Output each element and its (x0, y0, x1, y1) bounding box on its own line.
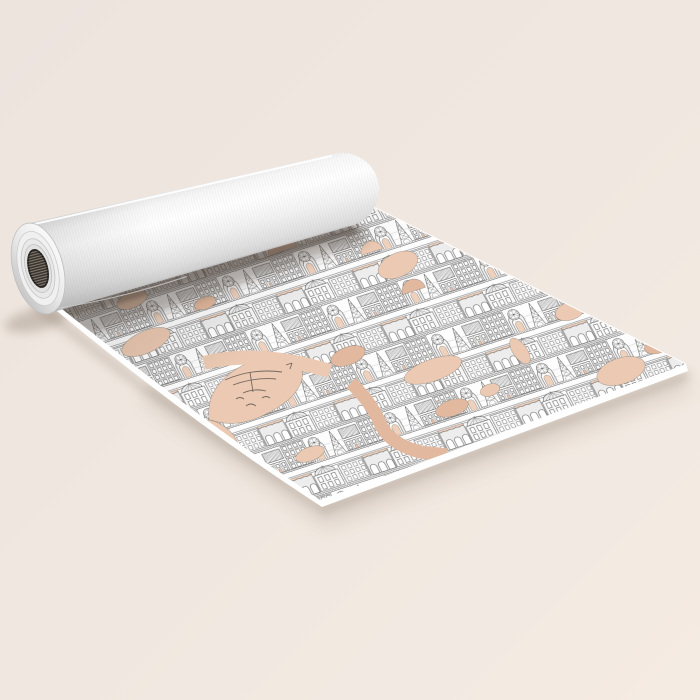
yoga-mat-scene: Yoga mat partially unrolled on a cream f… (0, 0, 700, 700)
product-image: Yoga mat partially unrolled on a cream f… (0, 0, 700, 700)
